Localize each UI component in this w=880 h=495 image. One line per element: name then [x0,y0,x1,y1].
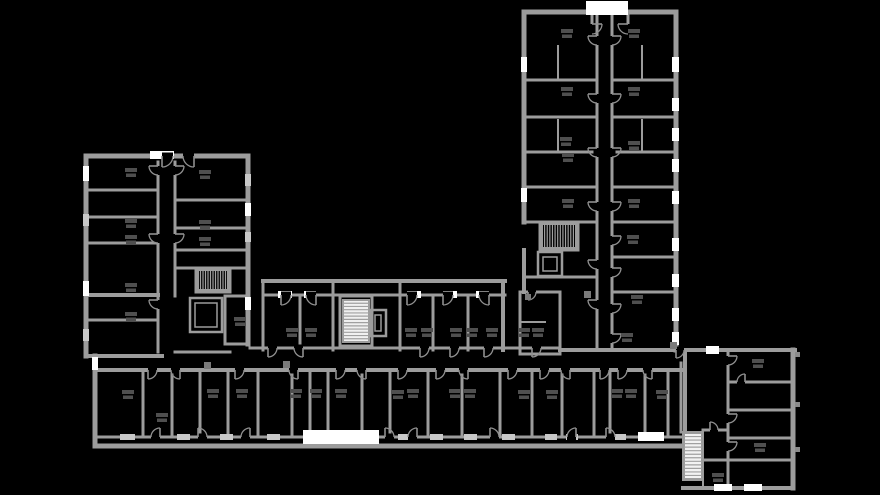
door-gap [183,153,194,160]
door-gap [594,148,601,157]
room-label [199,170,211,174]
room-label [290,389,302,393]
floor-plan-canvas [0,0,880,495]
room-label [629,35,639,39]
door-gap [643,367,652,374]
door-gap [725,414,732,423]
room-label [532,328,544,332]
door-gap [710,427,718,434]
room-label [200,243,210,247]
room-label [422,334,432,338]
door-gap [385,434,394,441]
window [430,434,443,440]
door-gap [540,367,549,374]
door-gap [306,292,316,299]
room-label [562,199,574,203]
room-label [752,359,764,363]
room-label [126,225,136,229]
door-gap [198,434,207,441]
door-gap [162,153,173,160]
window [502,434,515,440]
room-label [125,235,137,239]
door-gap [148,367,157,374]
room-label [753,365,763,369]
door-gap [357,367,366,374]
room-label [125,312,137,316]
door-gap [737,379,745,386]
door-gap [600,367,609,374]
room-label [310,389,322,393]
door-gap [407,292,417,299]
door-gap [241,434,250,441]
room-label [486,328,498,332]
room-label [518,390,530,394]
windows-layer [83,1,800,491]
door-gap [606,434,615,441]
window [245,232,251,242]
elevator-car [543,257,557,271]
walls-layer [86,12,795,488]
room-label [562,153,574,157]
room-label [487,334,497,338]
door-gap [609,268,616,277]
door-gap [609,236,616,245]
window [220,434,233,440]
door-gap [609,94,616,103]
room-label [311,395,321,399]
room-label [125,219,137,223]
door-gap [532,345,541,352]
room-label [305,328,317,332]
room-label [518,328,530,332]
door-gap [294,345,303,352]
room-label [306,334,316,338]
window [83,281,89,296]
window [267,434,280,440]
door-gap [594,94,601,103]
room-label [464,389,476,393]
floor-plan-viewport [0,0,880,495]
room-label [236,389,248,393]
room-label [561,143,571,147]
door-gap [594,260,601,269]
door-gap [561,367,570,374]
window [464,434,477,440]
entrance-patch [638,432,664,441]
room-label [392,390,404,394]
door-gap [172,166,179,175]
door-gap [450,345,459,352]
room-label [407,389,419,393]
room-label [200,226,210,230]
door-gap [490,434,499,441]
room-label [199,220,211,224]
door-gap [172,234,179,243]
column [584,291,591,298]
room-label [754,443,766,447]
room-label [519,396,529,400]
room-label [519,334,529,338]
door-gap [508,367,517,374]
room-label [628,199,640,203]
window [120,434,135,440]
room-label [713,479,723,483]
column [283,361,290,368]
room-label [656,390,668,394]
window [521,188,527,202]
room-label [465,395,475,399]
room-label [622,339,632,343]
room-label [466,328,478,332]
window [521,57,527,72]
window [245,174,251,186]
room-label [336,395,346,399]
room-label [237,395,247,399]
wall-tick [795,402,800,407]
room-label [406,334,416,338]
window [672,191,679,204]
room-label [629,205,639,209]
column [204,362,211,369]
room-label [612,395,622,399]
room-label [632,301,642,305]
elevator-car [195,303,217,327]
room-label [628,141,640,145]
room-label [657,396,667,400]
door-gap [567,434,576,441]
window [672,308,679,321]
window [92,357,98,370]
door-gap [155,166,162,175]
window [83,166,89,181]
room-label [421,328,433,332]
window [83,214,89,226]
room-label [122,390,134,394]
window [706,346,719,354]
room-label [126,289,136,293]
door-gap [676,347,684,354]
room-label [451,334,461,338]
room-label [125,283,137,287]
room-label [408,395,418,399]
wall-tick [795,447,800,452]
door-gap [443,292,453,299]
room-label [563,159,573,163]
door-gap [594,300,601,309]
door-gap [155,300,162,309]
room-label [157,419,167,423]
room-label [126,174,136,178]
door-gap [155,234,162,243]
elevator-shaft [538,252,562,276]
room-label [631,295,643,299]
room-label [562,93,572,97]
door-gap [420,345,429,352]
room-label [628,29,640,33]
door-gap [151,434,160,441]
room-label [126,241,136,245]
door-gap [589,24,596,34]
room-label [712,473,724,477]
window [672,57,679,72]
room-label [467,334,477,338]
window [672,238,679,251]
door-gap [609,36,616,45]
column [670,342,677,349]
room-label [561,29,573,33]
door-gap [609,334,616,343]
room-label [199,237,211,241]
room-label [235,323,245,327]
room-label [627,235,639,239]
room-label [625,389,637,393]
room-label [611,389,623,393]
door-gaps-layer [148,24,745,451]
room-label [547,396,557,400]
room-label [200,176,210,180]
room-label [755,449,765,453]
room-label [126,318,136,322]
door-gap [594,36,601,45]
door-gap [609,304,616,313]
window [672,159,679,172]
window [744,484,762,491]
room-label [123,396,133,400]
window [177,434,190,440]
room-label [287,334,297,338]
room-label [561,87,573,91]
door-gap [479,292,489,299]
room-label [393,396,403,400]
room-label [234,317,246,321]
room-label [562,35,572,39]
window [83,329,89,341]
door-gap [618,367,627,374]
room-label [449,389,461,393]
window [672,98,679,111]
room-label [450,395,460,399]
room-label [208,395,218,399]
room-label [405,328,417,332]
room-label [207,389,219,393]
window [672,128,679,141]
door-gap [436,367,445,374]
window [614,434,626,440]
columns-layer [204,291,677,369]
door-gap [408,434,417,441]
window [545,434,557,440]
elevator-car [375,315,381,331]
room-label [560,137,572,141]
door-gap [398,367,407,374]
door-gap [171,367,180,374]
room-label [629,93,639,97]
room-label [546,390,558,394]
door-gap [609,148,616,157]
room-label [291,395,301,399]
door-gap [594,202,601,211]
room-label [533,334,543,338]
door-gap [268,345,277,352]
doors-layer [148,24,745,451]
room-label [156,413,168,417]
door-gap [281,292,291,299]
door-gap [725,442,732,451]
room-label [626,395,636,399]
door-gap [609,202,616,211]
door-gap [459,367,468,374]
door-gap [235,367,244,374]
room-label [628,241,638,245]
wall-tick [795,352,800,357]
room-label [563,205,573,209]
door-gap [484,345,493,352]
window [714,484,732,491]
entrance-patch [586,1,628,15]
door-gap [725,356,732,365]
room-label [286,328,298,332]
room-label [628,87,640,91]
column [525,294,531,300]
room-label [621,333,633,337]
room-label [629,147,639,151]
room-label [335,389,347,393]
entrance-patch [303,430,379,444]
window [245,297,251,310]
door-gap [336,367,345,374]
window [672,274,679,287]
window [245,203,251,216]
room-label [125,168,137,172]
door-gap [289,367,298,374]
room-label [450,328,462,332]
